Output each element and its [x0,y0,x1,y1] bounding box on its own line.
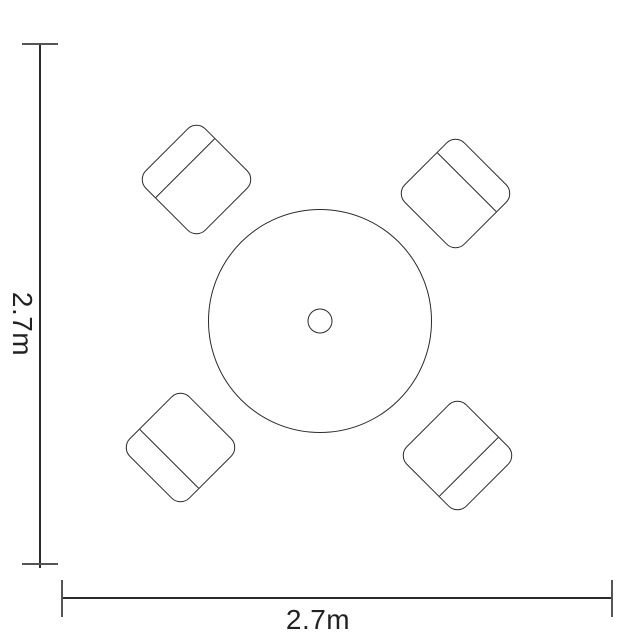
height-dimension-cap-bottom [22,563,58,565]
width-dimension-cap-right [611,580,613,617]
chair-top-left [136,119,256,239]
chair-top-left-backrest-line [138,121,215,198]
chair-bottom-right-backrest-line [439,437,516,514]
chair-bottom-right [397,395,517,515]
width-dimension-label: 2.7m [286,606,350,634]
height-dimension-cap-top [22,43,58,45]
round-table-top [208,209,432,433]
chair-top-right [395,133,515,253]
chair-top-right-backrest-line [437,135,514,212]
width-dimension-line [62,597,612,599]
height-dimension-label: 2.7m [8,292,36,356]
parasol-hole [308,309,333,334]
width-dimension-cap-left [61,580,63,617]
height-dimension-line [39,44,41,568]
chair-bottom-left-backrest-line [122,429,199,506]
floorplan-canvas: 2.7m 2.7m [0,0,640,640]
chair-bottom-left [120,387,240,507]
